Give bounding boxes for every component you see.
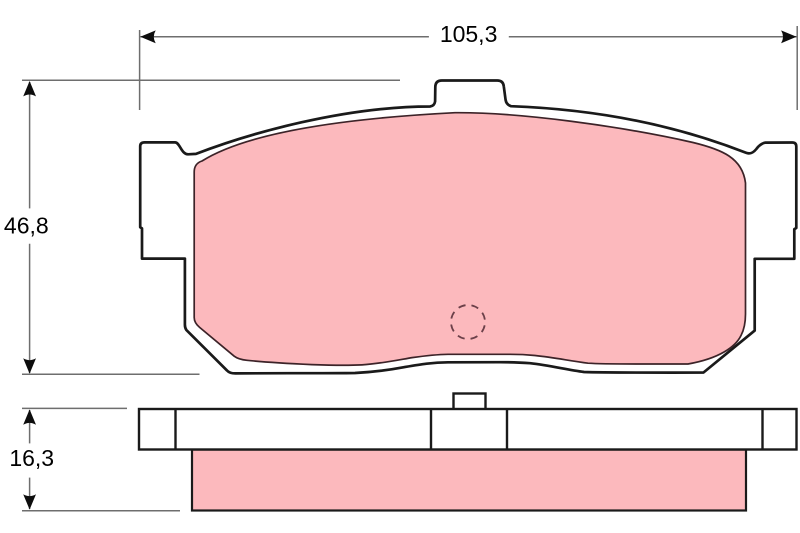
svg-text:16,3: 16,3 — [9, 445, 54, 471]
svg-text:105,3: 105,3 — [440, 21, 498, 47]
svg-text:46,8: 46,8 — [4, 213, 49, 239]
